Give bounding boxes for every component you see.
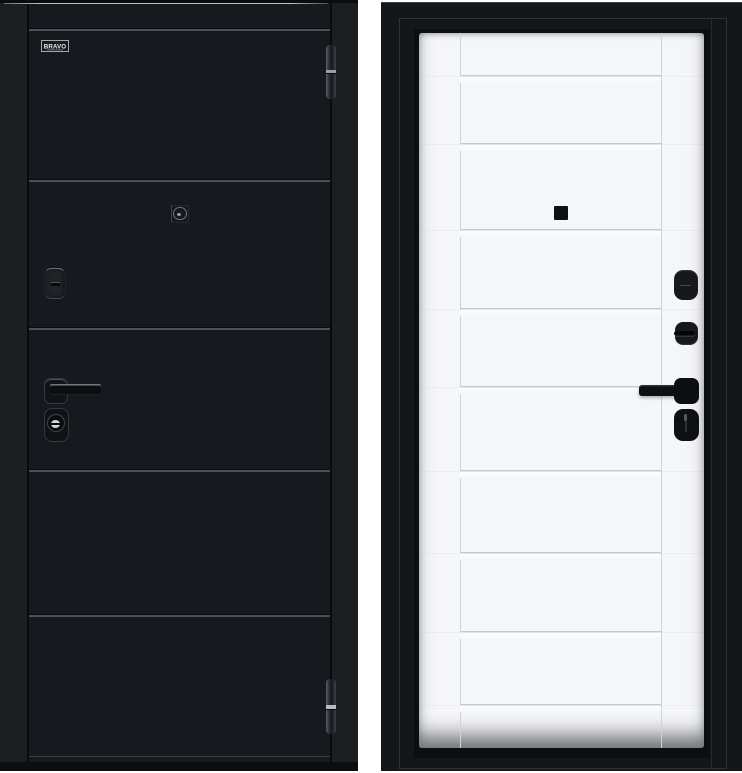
svg-text:BRAVO: BRAVO [44, 43, 66, 50]
